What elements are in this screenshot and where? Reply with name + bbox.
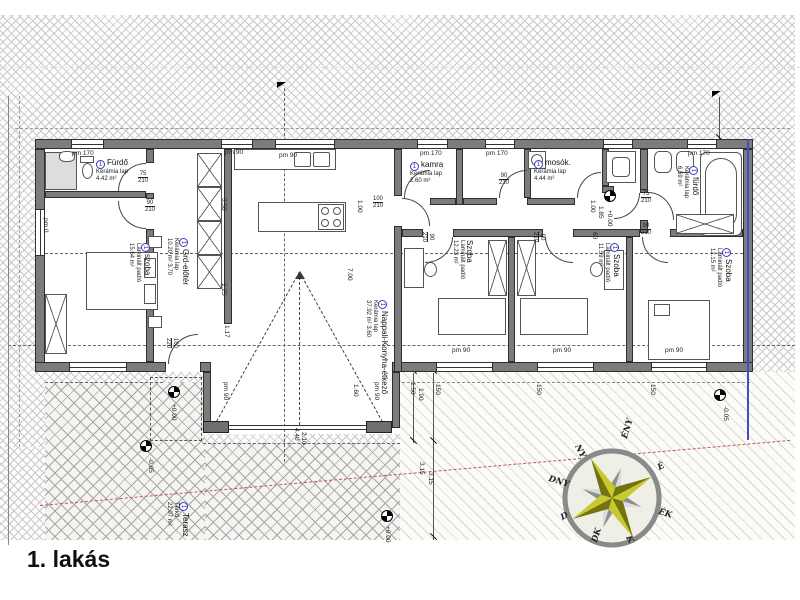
- wall: [430, 198, 456, 205]
- wardrobe: [197, 221, 222, 255]
- window: [486, 139, 514, 149]
- elevation-marker: [140, 440, 152, 452]
- toilet-bowl: [82, 163, 93, 179]
- survey-flag: [712, 91, 721, 97]
- bathroom-cabinet: [676, 214, 734, 234]
- survey-flag: [277, 82, 286, 88]
- burner: [333, 219, 341, 227]
- wall: [463, 198, 497, 205]
- left-boundary-dash: [19, 96, 20, 447]
- elevation-marker: [381, 510, 393, 522]
- site-hatch-left-strip: [0, 447, 45, 540]
- burner: [321, 219, 329, 227]
- section-marker-blue: [747, 139, 749, 440]
- terrace-edge-dash: [203, 443, 400, 444]
- desk: [404, 248, 424, 288]
- window: [72, 139, 103, 149]
- wall: [394, 226, 402, 372]
- wall: [334, 139, 418, 149]
- wall: [126, 362, 166, 372]
- left-boundary-line: [8, 96, 9, 545]
- washbasin: [59, 151, 75, 162]
- compass-rose: [556, 442, 668, 554]
- bed: [438, 298, 506, 335]
- terrace-top-dash: [45, 382, 163, 383]
- wall: [35, 139, 72, 149]
- glass-door-frame: [366, 421, 392, 433]
- window: [688, 139, 716, 149]
- glass-door-frame: [203, 421, 229, 433]
- toilet-tank: [80, 156, 94, 163]
- kitchen-sink: [313, 152, 330, 167]
- elevation-marker: [714, 389, 726, 401]
- wall: [35, 362, 70, 372]
- wardrobe: [517, 240, 536, 296]
- wall: [146, 149, 154, 163]
- garden-edge-dash: [402, 382, 750, 383]
- wardrobe: [197, 255, 222, 289]
- boundary-dash-top-faint: [0, 67, 800, 68]
- wall: [146, 193, 154, 199]
- window: [604, 139, 632, 149]
- wall: [394, 149, 402, 196]
- terrace-paving-2: [205, 443, 400, 540]
- boundary-dash-top: [15, 128, 790, 129]
- window: [35, 210, 45, 255]
- desk: [604, 250, 624, 290]
- pillow: [654, 304, 670, 316]
- nightstand: [148, 316, 162, 328]
- washbasin: [676, 151, 694, 173]
- wall: [447, 139, 486, 149]
- wall: [456, 149, 463, 205]
- washbasin: [654, 151, 672, 173]
- window: [222, 139, 252, 149]
- wall: [632, 139, 688, 149]
- dim-line-garden: [433, 373, 434, 540]
- wall: [508, 237, 515, 362]
- window: [70, 362, 126, 372]
- wardrobe: [197, 187, 222, 221]
- wardrobe: [45, 294, 67, 354]
- window: [538, 362, 593, 372]
- wall: [626, 237, 633, 362]
- wardrobe: [488, 240, 507, 296]
- wall: [200, 362, 211, 372]
- burner: [333, 207, 341, 215]
- window: [276, 139, 334, 149]
- wall: [103, 139, 222, 149]
- wardrobe: [197, 153, 222, 187]
- chair: [424, 262, 437, 277]
- dim-line-bay: [413, 373, 414, 443]
- glass-sliding-door: [229, 425, 366, 430]
- wall: [45, 191, 146, 198]
- elevation-marker: [168, 386, 180, 398]
- wall: [252, 139, 276, 149]
- wall: [453, 229, 543, 237]
- wall: [35, 149, 45, 210]
- kitchen-sink: [294, 152, 311, 167]
- washing-machine-door: [531, 154, 543, 166]
- wall: [640, 220, 648, 233]
- wall: [392, 372, 400, 428]
- wall: [402, 229, 423, 237]
- window: [418, 139, 447, 149]
- wall: [640, 149, 648, 190]
- wall: [224, 149, 232, 324]
- floor-plan-page: 1FürdőKerámia lap4.42 m²1szobaLaminált p…: [0, 0, 800, 600]
- wall: [514, 139, 604, 149]
- ridge-line: [299, 272, 300, 430]
- nightstand: [148, 236, 162, 248]
- wall: [573, 229, 640, 237]
- wall: [203, 372, 211, 428]
- wall: [706, 362, 753, 372]
- wall: [492, 362, 538, 372]
- burner: [321, 207, 329, 215]
- pillow: [144, 284, 156, 304]
- wall: [35, 255, 45, 372]
- shower-drain: [612, 157, 630, 177]
- elevation-marker: [604, 190, 616, 202]
- drawing-title: 1. lakás: [27, 546, 110, 573]
- pillow: [144, 258, 156, 278]
- chair: [590, 262, 603, 277]
- bed: [520, 298, 588, 335]
- window: [437, 362, 492, 372]
- wall: [593, 362, 652, 372]
- wall: [527, 198, 575, 205]
- dim-line-topright: [719, 97, 720, 139]
- window: [652, 362, 706, 372]
